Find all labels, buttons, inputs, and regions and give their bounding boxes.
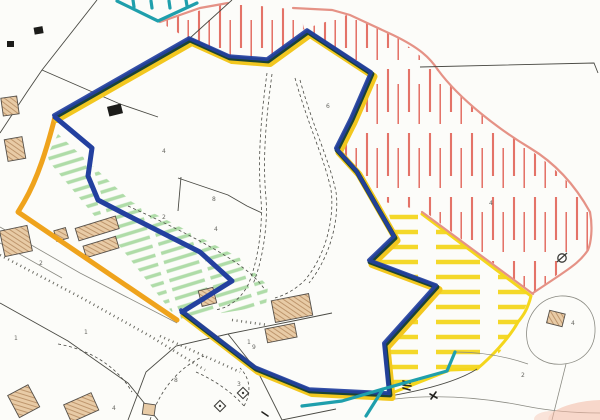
parcel-number: 1 (247, 339, 251, 346)
parcel-number: 4 (112, 405, 116, 412)
parcel-number: 4 (571, 320, 575, 327)
parcel-number: 2 (162, 214, 166, 221)
parcel-number: 8 (212, 196, 216, 203)
parcel-number: 9 (252, 344, 256, 351)
parcel-number: 3 (237, 381, 241, 388)
parcel-number: 6 (326, 103, 330, 110)
parcel-number: 2 (39, 260, 43, 267)
cadastral-map-scan: 4622841141894432 (0, 0, 600, 420)
parcel-number: 2 (521, 372, 525, 379)
parcel-number: 1 (14, 335, 18, 342)
parcel-number: 4 (489, 200, 493, 207)
map-canvas: 4622841141894432 (0, 0, 600, 420)
parcel-number: 8 (174, 377, 178, 384)
parcel-number: 4 (214, 226, 218, 233)
parcel-number: 4 (162, 148, 166, 155)
parcel-number: 1 (84, 329, 88, 336)
